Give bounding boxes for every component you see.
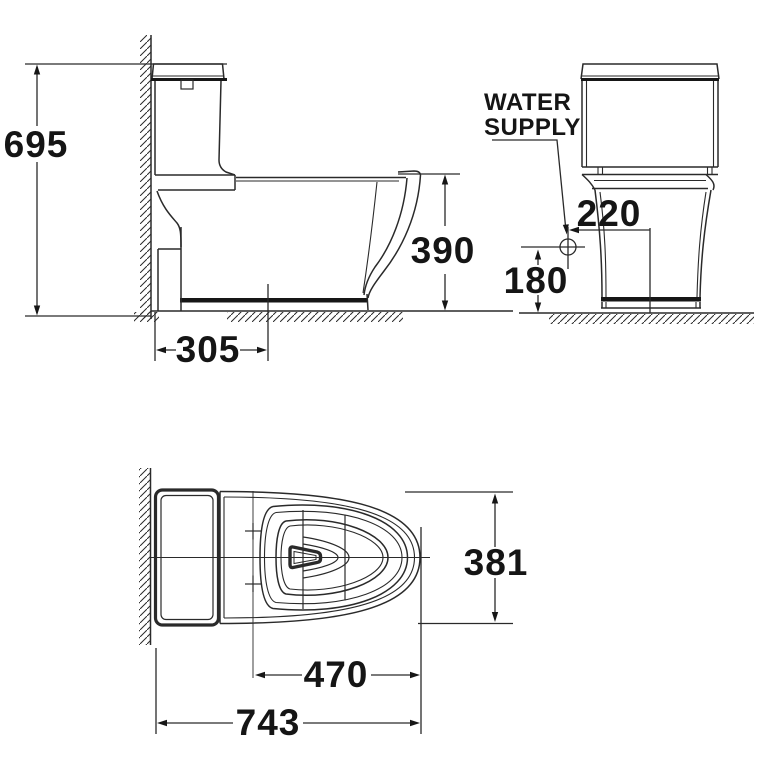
wall-hatching <box>140 35 151 319</box>
label-supply-offset: 220 <box>577 193 642 234</box>
flush-button <box>181 80 193 89</box>
toilet-side-profile <box>151 64 421 311</box>
label-overall-length: 743 <box>236 702 301 743</box>
label-tank-to-front: 470 <box>304 654 369 695</box>
ground-hatching <box>549 314 754 324</box>
leader-line <box>492 140 566 231</box>
label-bowl-height: 390 <box>411 230 476 271</box>
label-outlet-from-wall: 305 <box>176 329 241 370</box>
drawing-svg: 695 305 390 220 180 381 470 743 WATER SU… <box>0 0 768 768</box>
toilet-dimension-drawing: 695 305 390 220 180 381 470 743 WATER SU… <box>0 0 768 768</box>
ground-hatching <box>227 312 403 322</box>
water-supply-callout <box>492 140 585 269</box>
label-overall-width: 381 <box>464 542 529 583</box>
water-supply-label-line2: SUPPLY <box>484 114 581 141</box>
toilet-plan-outline <box>156 490 421 678</box>
dimension-labels: 695 305 390 220 180 381 470 743 WATER SU… <box>4 89 642 743</box>
label-overall-height: 695 <box>4 124 69 165</box>
side-view <box>25 35 513 361</box>
label-supply-height: 180 <box>504 260 569 301</box>
water-supply-label-line1: WATER <box>484 89 571 116</box>
wall-hatching <box>139 468 150 645</box>
